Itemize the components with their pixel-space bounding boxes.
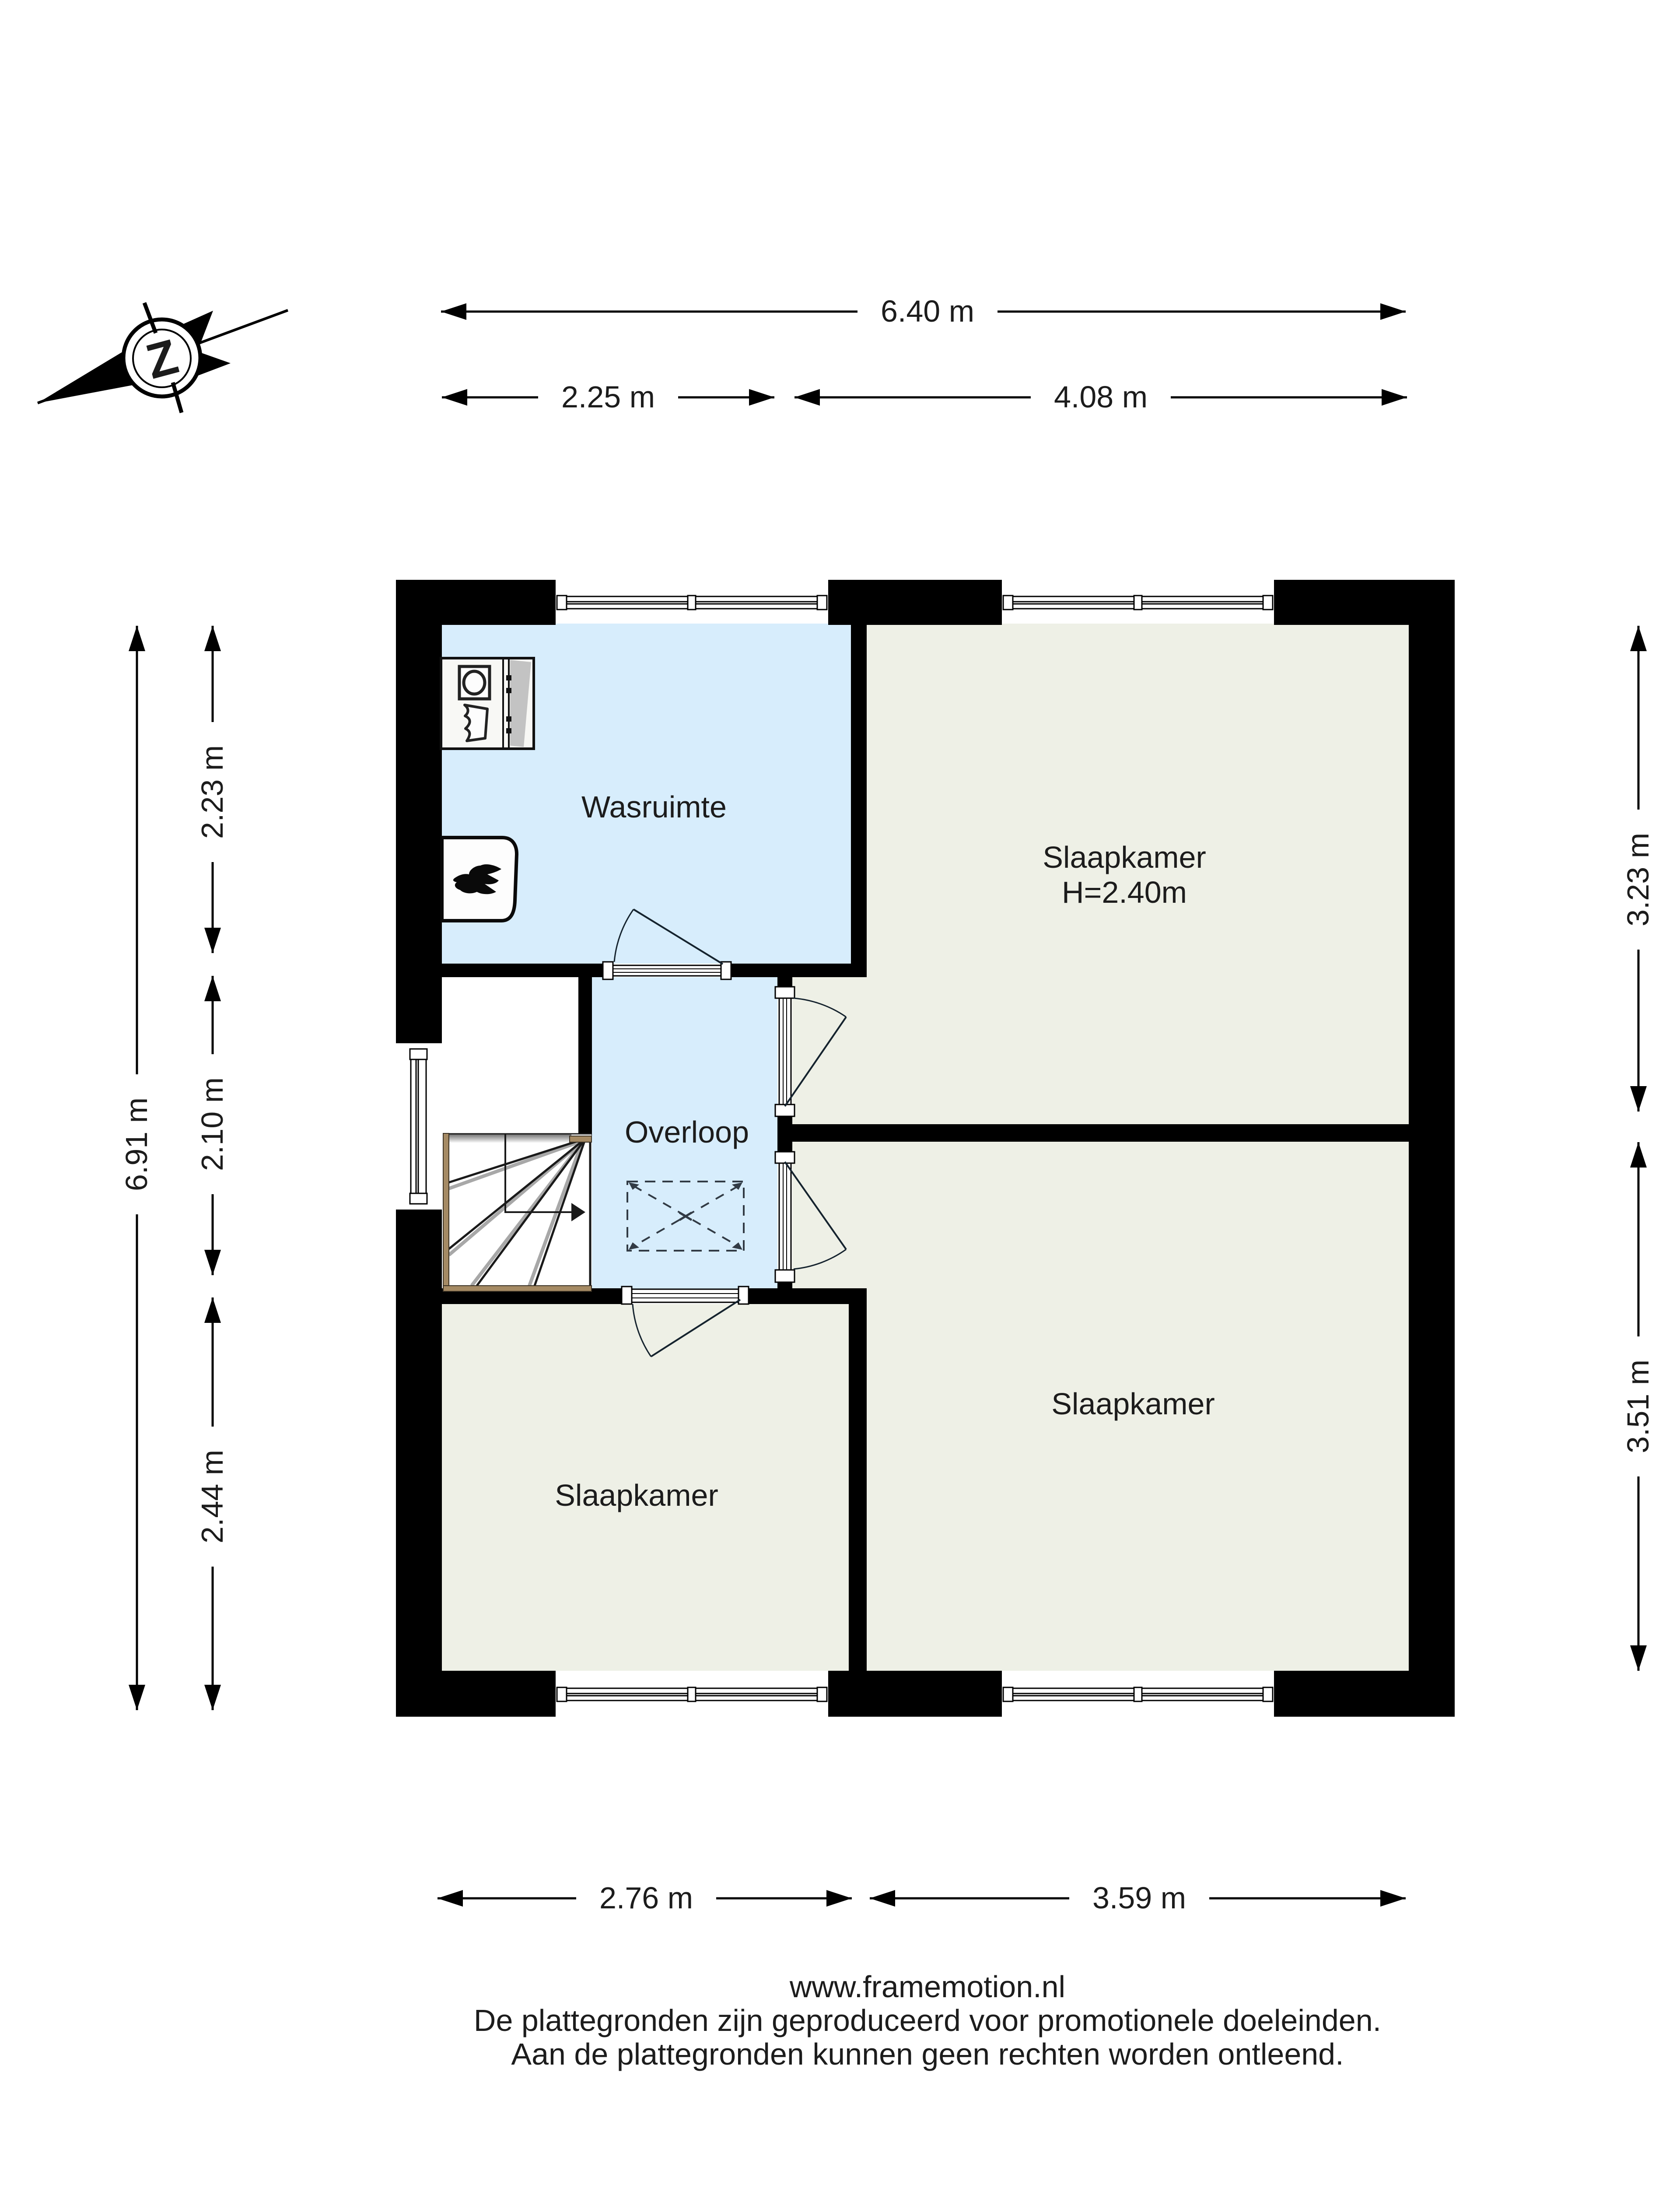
- svg-text:4.08 m: 4.08 m: [1054, 380, 1148, 414]
- svg-text:2.23 m: 2.23 m: [195, 745, 229, 839]
- svg-text:Overloop: Overloop: [625, 1115, 749, 1149]
- svg-text:Aan de plattegronden kunnen ge: Aan de plattegronden kunnen geen rechten…: [511, 2037, 1344, 2071]
- svg-text:3.59 m: 3.59 m: [1092, 1881, 1186, 1915]
- svg-text:2.25 m: 2.25 m: [561, 380, 655, 414]
- svg-text:Wasruimte: Wasruimte: [581, 790, 727, 824]
- svg-text:3.51 m: 3.51 m: [1621, 1360, 1655, 1453]
- svg-text:Slaapkamer: Slaapkamer: [1051, 1387, 1215, 1421]
- svg-text:6.91 m: 6.91 m: [119, 1098, 154, 1191]
- svg-text:2.44 m: 2.44 m: [195, 1450, 229, 1543]
- svg-text:3.23 m: 3.23 m: [1621, 833, 1655, 926]
- svg-text:2.10 m: 2.10 m: [195, 1077, 229, 1171]
- svg-text:www.framemotion.nl: www.framemotion.nl: [789, 1970, 1065, 2004]
- svg-text:H=2.40m: H=2.40m: [1062, 875, 1187, 909]
- svg-text:2.76 m: 2.76 m: [599, 1881, 693, 1915]
- svg-text:De plattegronden zijn geproduc: De plattegronden zijn geproduceerd voor …: [474, 2003, 1381, 2037]
- svg-text:Slaapkamer: Slaapkamer: [1043, 840, 1206, 874]
- svg-text:Slaapkamer: Slaapkamer: [555, 1478, 718, 1512]
- svg-text:6.40 m: 6.40 m: [881, 294, 974, 328]
